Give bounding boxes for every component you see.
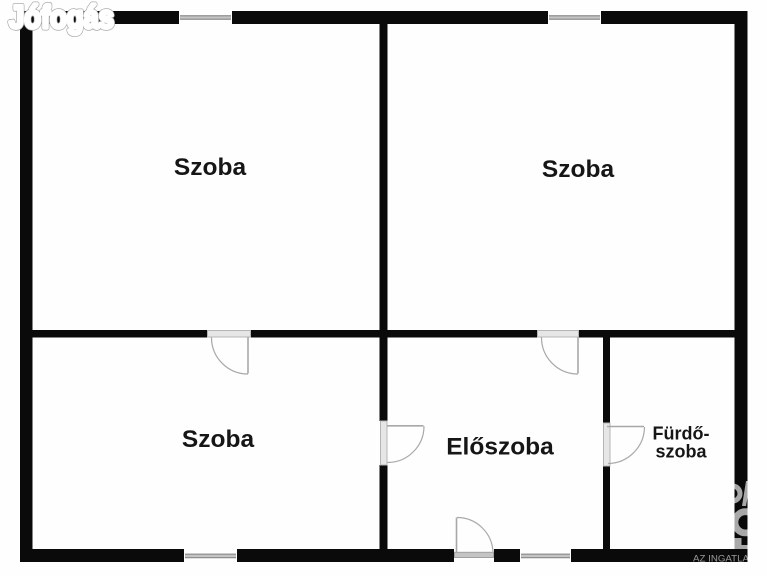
- svg-text:Szoba: Szoba: [542, 156, 615, 183]
- svg-text:Szoba: Szoba: [174, 154, 247, 181]
- svg-text:Jófogás: Jófogás: [9, 0, 114, 35]
- svg-text:szoba: szoba: [655, 442, 707, 462]
- svg-text:Előszoba: Előszoba: [446, 434, 554, 461]
- svg-text:Fürdő-: Fürdő-: [653, 424, 710, 444]
- svg-text:Szoba: Szoba: [182, 426, 255, 453]
